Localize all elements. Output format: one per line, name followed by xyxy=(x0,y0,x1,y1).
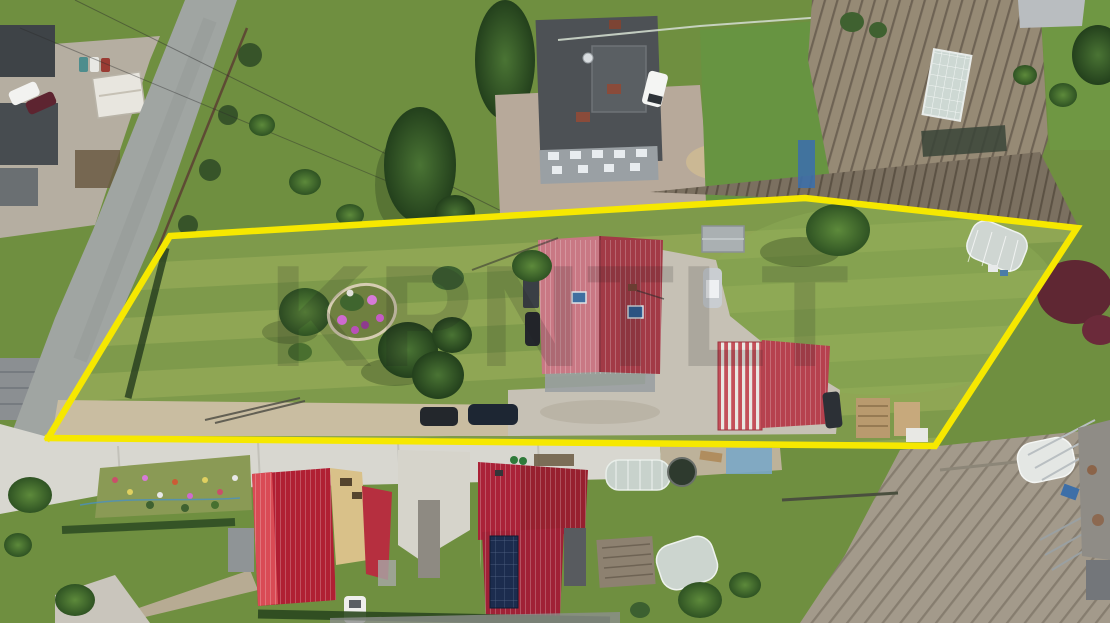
solar-array xyxy=(490,536,518,608)
red-roof-ribs xyxy=(252,468,336,606)
crate xyxy=(988,265,998,272)
tree xyxy=(289,169,321,195)
tree xyxy=(249,114,275,136)
neighbor-roof-1 xyxy=(0,25,55,77)
neighbor-roof-3 xyxy=(0,168,38,206)
watermark: KPNTLT xyxy=(268,235,853,397)
terrace xyxy=(378,560,396,586)
roofbox xyxy=(349,600,361,608)
brick-chimney xyxy=(607,84,621,94)
blue-tarp xyxy=(726,448,772,474)
bush xyxy=(1049,83,1077,107)
rust-patch xyxy=(1087,465,1097,475)
satellite-dish xyxy=(583,53,593,63)
brick-chimney xyxy=(609,20,621,29)
dark-wing xyxy=(564,528,586,586)
bush xyxy=(630,602,650,618)
lumber-stack xyxy=(856,398,890,438)
white-tarp xyxy=(906,428,928,442)
roof-vent xyxy=(495,470,503,476)
blue-container xyxy=(798,140,815,188)
brick-chimney xyxy=(576,112,590,122)
rust-patch xyxy=(1092,514,1104,526)
crate xyxy=(1000,270,1008,276)
gray-shed xyxy=(228,528,254,572)
villa-penthouse-roof xyxy=(592,46,646,112)
tree xyxy=(55,584,95,616)
bush xyxy=(1013,65,1037,85)
bush xyxy=(869,22,887,38)
trampoline xyxy=(668,458,696,486)
parked-dark-car-2 xyxy=(468,404,518,425)
farm-shed-roof xyxy=(1078,420,1110,560)
aerial-photo-stage: KPNTLT xyxy=(0,0,1110,623)
corner-building-roof xyxy=(1018,0,1085,28)
attic-window xyxy=(340,478,352,486)
gray-pad xyxy=(418,500,440,578)
stacked-goods xyxy=(534,454,574,466)
bush xyxy=(840,12,864,32)
tree xyxy=(8,477,52,513)
tree xyxy=(678,582,722,618)
yard-blotch xyxy=(540,400,660,424)
attic-window xyxy=(352,492,362,499)
tree xyxy=(4,533,32,557)
green-bin xyxy=(519,457,527,465)
green-bin xyxy=(510,456,518,464)
farm-shed-roof-2 xyxy=(1086,560,1110,600)
parked-dark-car-1 xyxy=(420,407,458,426)
aerial-photo: KPNTLT xyxy=(0,0,1110,623)
tree xyxy=(729,572,761,598)
